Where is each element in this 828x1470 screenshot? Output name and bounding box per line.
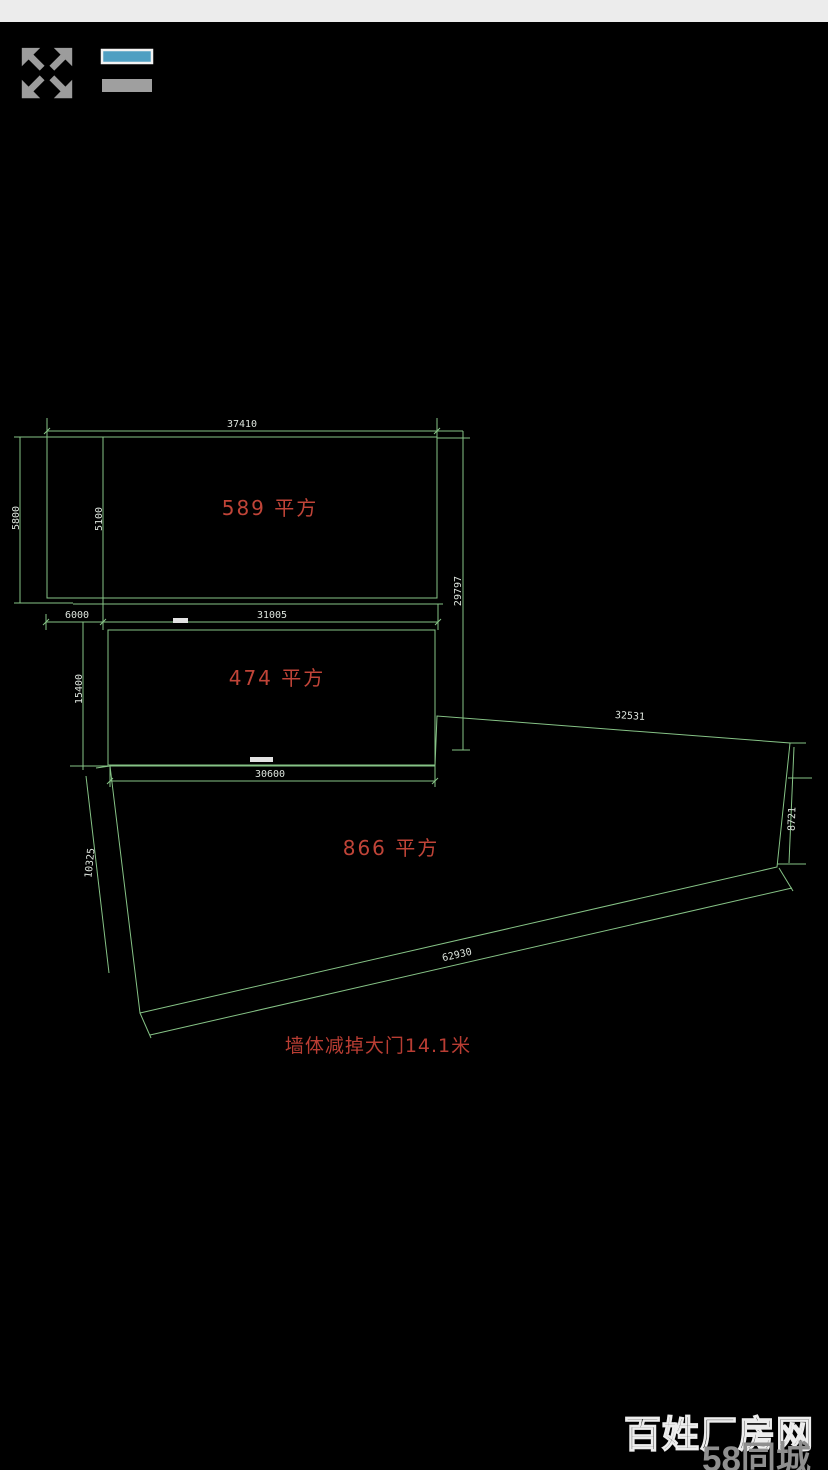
dim-right-height: 29797	[453, 576, 464, 606]
dimension-texts: 37410 5800 5100 29797 6000 31005 15400 3…	[11, 419, 798, 964]
wall-note-label: 墙体减掉大门14.1米	[285, 1035, 471, 1057]
dim-mid-left-height: 15400	[74, 674, 85, 704]
drawing-canvas[interactable]: 37410 5800 5100 29797 6000 31005 15400 3…	[0, 0, 828, 1470]
dim-bottom-diagonal: 62930	[441, 947, 473, 964]
room-866-outline	[110, 716, 790, 1013]
dim-top-diagonal: 32531	[615, 710, 646, 723]
cad-viewer-screen: 37410 5800 5100 29797 6000 31005 15400 3…	[0, 0, 828, 1470]
dim-top-width: 37410	[227, 419, 257, 430]
dim-left-slant: 10325	[83, 848, 97, 879]
dim-mid-top-width: 31005	[257, 610, 287, 621]
dim-gap-width: 6000	[65, 610, 89, 621]
room-474-outline	[108, 630, 435, 765]
highlight-marks	[173, 618, 273, 762]
dim-left-height: 5800	[11, 506, 22, 530]
room-866-label: 866 平方	[343, 836, 440, 860]
dim-inner-left-height: 5100	[94, 507, 105, 531]
room-589-label: 589 平方	[222, 496, 319, 520]
floorplan-lines	[14, 418, 812, 1038]
watermark-brand: 58同城	[702, 1431, 811, 1470]
dim-right-side: 8721	[787, 807, 799, 831]
room-474-label: 474 平方	[229, 666, 326, 690]
dim-mid-bottom-width: 30600	[255, 769, 285, 780]
